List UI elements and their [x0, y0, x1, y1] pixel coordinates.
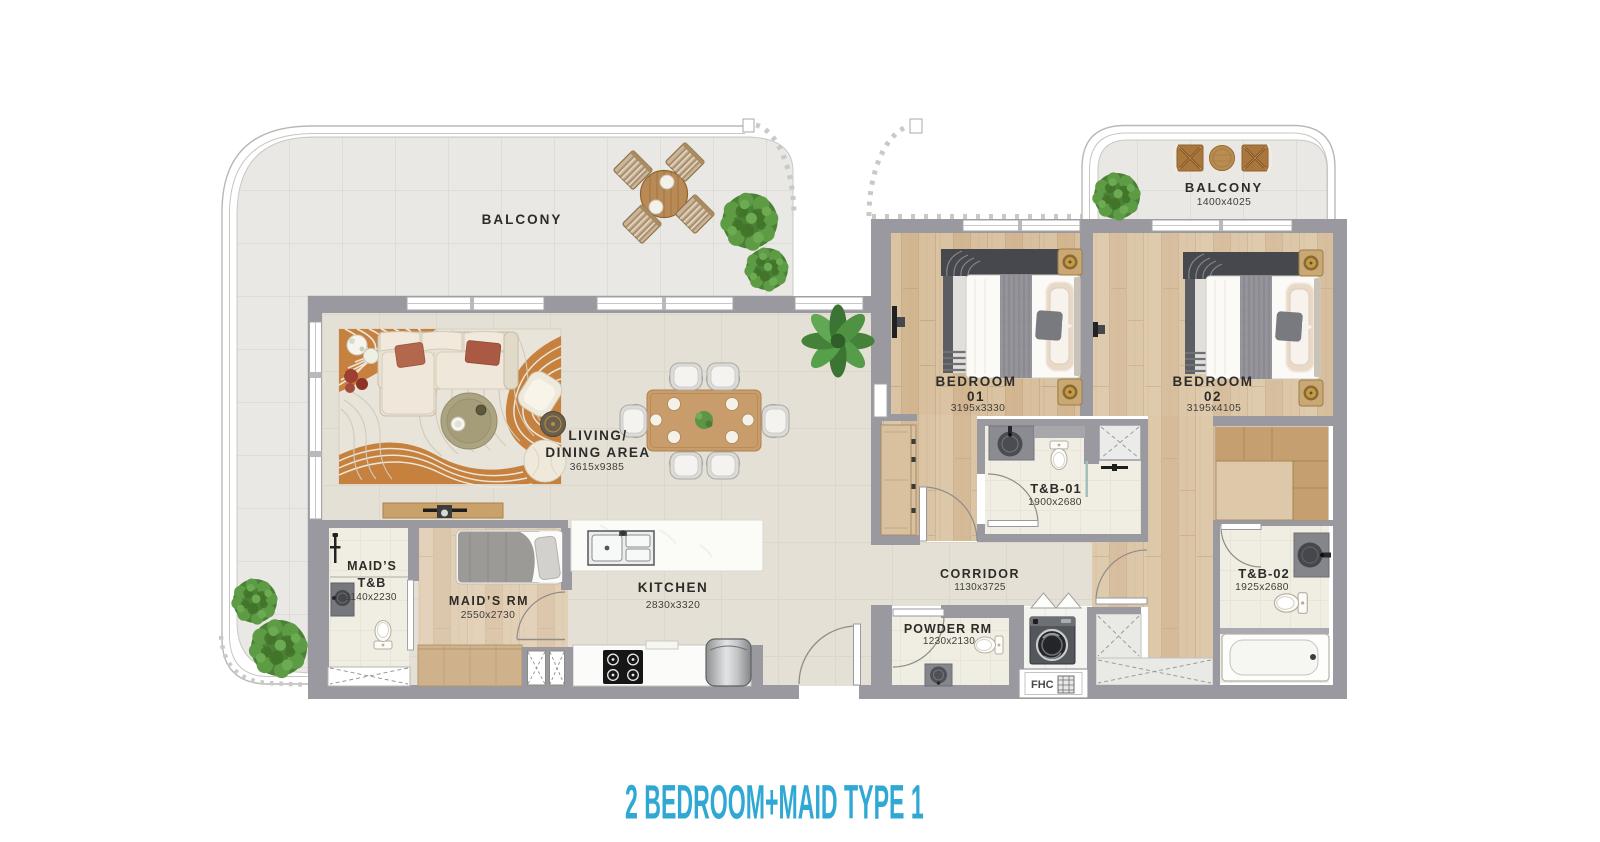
svg-text:KITCHEN: KITCHEN [638, 580, 709, 595]
svg-text:1230x2130: 1230x2130 [923, 636, 975, 647]
svg-text:MAID’S: MAID’S [347, 559, 397, 573]
svg-text:1900x2680: 1900x2680 [1028, 497, 1082, 508]
svg-text:FHC: FHC [1031, 679, 1054, 691]
svg-text:T&B-01: T&B-01 [1030, 481, 1082, 496]
svg-text:01: 01 [967, 389, 985, 404]
svg-text:BEDROOM: BEDROOM [1173, 374, 1254, 389]
svg-text:1130x3725: 1130x3725 [954, 582, 1006, 593]
svg-text:3195x4105: 3195x4105 [1187, 403, 1242, 414]
svg-text:LIVING/: LIVING/ [568, 428, 627, 443]
svg-text:BALCONY: BALCONY [482, 212, 563, 227]
svg-text:MAID’S RM: MAID’S RM [449, 594, 529, 608]
svg-text:POWDER RM: POWDER RM [904, 622, 992, 636]
svg-text:02: 02 [1204, 389, 1222, 404]
svg-text:1925x2680: 1925x2680 [1235, 582, 1289, 593]
svg-text:1140x2230: 1140x2230 [345, 592, 397, 603]
svg-text:CORRIDOR: CORRIDOR [940, 567, 1020, 581]
svg-text:3195x3330: 3195x3330 [951, 403, 1006, 414]
svg-text:BALCONY: BALCONY [1185, 180, 1263, 195]
svg-text:2 BEDROOM+MAID TYPE 1: 2 BEDROOM+MAID TYPE 1 [625, 775, 924, 829]
svg-text:BEDROOM: BEDROOM [936, 374, 1017, 389]
svg-text:T&B: T&B [358, 576, 387, 590]
svg-text:2550x2730: 2550x2730 [461, 610, 516, 621]
svg-text:DINING AREA: DINING AREA [545, 445, 650, 460]
svg-text:2830x3320: 2830x3320 [646, 600, 701, 611]
svg-text:T&B-02: T&B-02 [1238, 566, 1290, 581]
svg-text:1400x4025: 1400x4025 [1197, 197, 1252, 208]
svg-text:3615x9385: 3615x9385 [570, 462, 625, 473]
